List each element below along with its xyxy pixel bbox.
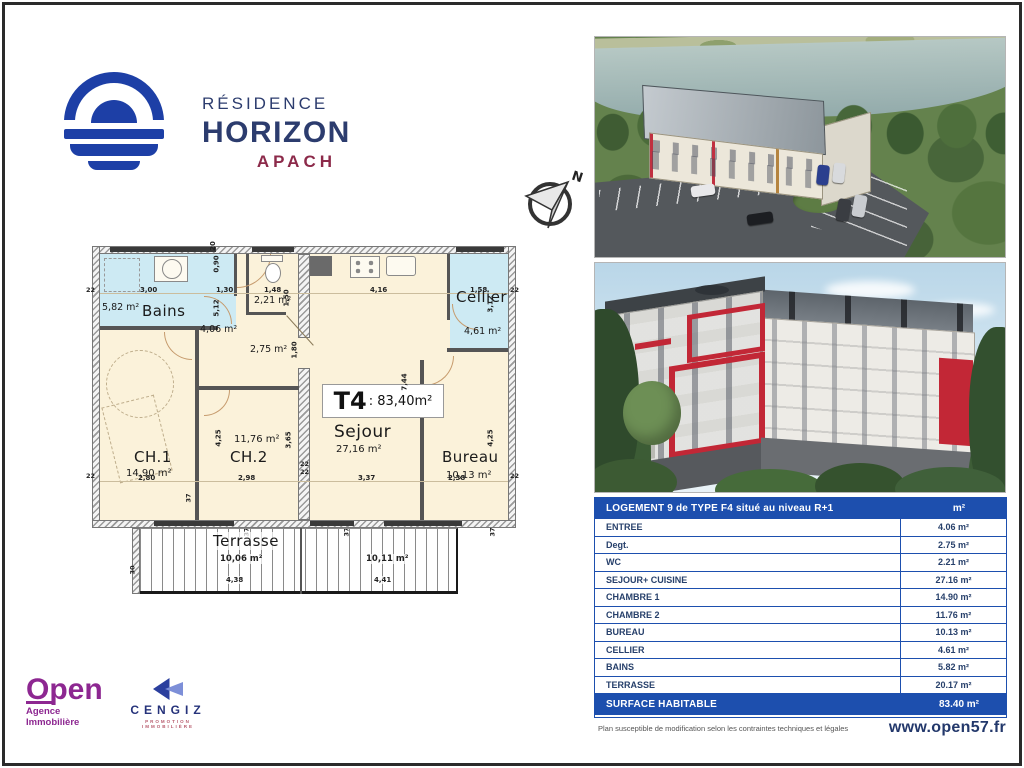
roof-parasol [695, 285, 729, 295]
dim-bottom: 2,38 [448, 474, 465, 482]
terrace-door [384, 521, 462, 526]
table-title: LOGEMENT 9 de TYPE F4 situé au niveau R+… [595, 503, 912, 514]
wall-bearing [298, 368, 310, 520]
wall-cellier-left [447, 254, 450, 320]
sink-bowl [162, 259, 182, 279]
t4-area: : 83,40m² [369, 394, 433, 409]
t4-type: T4 [334, 387, 367, 415]
red-accent-column [939, 358, 973, 446]
row-value: 2.75 m² [901, 537, 1006, 554]
shower [104, 258, 140, 292]
window [110, 247, 216, 252]
wall-wc-bottom [246, 312, 286, 315]
table-row: BUREAU10.13 m² [595, 624, 1006, 642]
sejour-area: 27,16 m² [336, 444, 382, 455]
cengiz-arrow-icon [153, 678, 183, 700]
wall-cellier-bottom [447, 348, 508, 352]
dim-line [100, 481, 508, 482]
total-value: 83.40 m² [912, 699, 1006, 710]
building-gable [821, 112, 871, 206]
dim-vertical: 4,25 [215, 429, 223, 446]
row-value: 4.06 m² [901, 519, 1006, 536]
row-value: 27.16 m² [901, 572, 1006, 589]
dim-vertical: 3,65 [285, 431, 293, 448]
open-logo-subtitle: Agence Immobilière [26, 706, 116, 728]
dim-terrasse-depth: 30 [129, 565, 137, 574]
logo-bar [70, 144, 158, 156]
wall-ch1-right [195, 330, 199, 520]
bains-area: 5,82 m² [102, 302, 139, 313]
terrace-deck [140, 528, 458, 594]
window [456, 247, 504, 252]
dim-vertical: 0,90 [213, 255, 221, 272]
wall-bearing [298, 254, 310, 338]
row-label: ENTREE [595, 519, 901, 536]
row-label: Degt. [595, 537, 901, 554]
row-label: CHAMBRE 1 [595, 589, 901, 606]
wall-mark: 22 [86, 472, 95, 480]
wall-mark: 22 [86, 286, 95, 294]
toilet-bowl [265, 263, 281, 283]
open-agency-logo: Open Agence Immobilière [26, 676, 116, 728]
wall-mark: 22 [510, 286, 519, 294]
street-building-render [594, 262, 1006, 493]
aerial-building-render [594, 36, 1006, 258]
table-row: TERRASSE20.17 m² [595, 677, 1006, 695]
dim-vertical: 1,80 [291, 341, 299, 358]
car [832, 162, 846, 183]
row-value: 14.90 m² [901, 589, 1006, 606]
table-total-row: SURFACE HABITABLE 83.40 m² [595, 694, 1006, 715]
dim-top: 3,00 [140, 286, 157, 294]
svg-text:N: N [570, 169, 585, 187]
wall-mark: 37 [185, 493, 193, 502]
dim-terrasse: 4,38 [226, 576, 243, 584]
dim-top: 4,16 [370, 286, 387, 294]
wall-mark: 22 [300, 460, 309, 468]
dim-bottom: 2,80 [138, 474, 155, 482]
dim-top: 1,58 [470, 286, 487, 294]
dim-vertical: 3,12 [487, 295, 495, 312]
row-value: 2.21 m² [901, 554, 1006, 571]
row-label: SEJOUR+ CUISINE [595, 572, 901, 589]
floor-plan: T4: 83,40m² 5,82 m² Bains 4,06 m² 2,21 m… [84, 238, 524, 618]
ch2-area: 11,76 m² [234, 434, 280, 445]
row-label: CHAMBRE 2 [595, 607, 901, 624]
cellier-area: 4,61 m² [464, 326, 501, 337]
surfaces-table: LOGEMENT 9 de TYPE F4 situé au niveau R+… [594, 497, 1007, 718]
row-label: WC [595, 554, 901, 571]
ch1-label: CH.1 [134, 448, 172, 466]
toilet-tank [261, 255, 283, 262]
terrasse-area-right: 10,11 m² [366, 554, 408, 564]
row-value: 4.61 m² [901, 642, 1006, 659]
sejour-label: Sejour [334, 422, 391, 442]
dim-vertical: 20 [209, 241, 217, 251]
dim-bottom: 2,98 [238, 474, 255, 482]
terrasse-label: Terrasse [210, 532, 282, 550]
table-row: SEJOUR+ CUISINE27.16 m² [595, 572, 1006, 590]
table-row: WC2.21 m² [595, 554, 1006, 572]
total-label: SURFACE HABITABLE [595, 699, 912, 710]
dim-vertical: 7,44 [401, 373, 409, 390]
dim-line [100, 293, 508, 294]
logo-bar [64, 129, 164, 139]
terrace-divider [300, 528, 302, 594]
horizon-word: HORIZON [202, 116, 352, 150]
entree-area: 4,06 m² [200, 324, 237, 335]
cengiz-logo-subtitle: PROMOTION IMMOBILIÈRE [118, 719, 218, 729]
terrace-side-wall [132, 528, 140, 594]
wall-mark: 37 [489, 527, 497, 536]
open-logo-word: Open [26, 676, 116, 704]
dim-top: 1,48 [264, 286, 281, 294]
bureau-label: Bureau [442, 448, 499, 466]
ch2-label: CH.2 [230, 448, 268, 466]
degt-area: 2,75 m² [250, 344, 287, 355]
row-label: TERRASSE [595, 677, 901, 694]
row-value: 10.13 m² [901, 624, 1006, 641]
table-row: BAINS5.82 m² [595, 659, 1006, 677]
table-row: ENTREE4.06 m² [595, 519, 1006, 537]
row-label: BUREAU [595, 624, 901, 641]
row-value: 5.82 m² [901, 659, 1006, 676]
residence-word: RÉSIDENCE [202, 94, 352, 114]
table-row: CHAMBRE 211.76 m² [595, 607, 1006, 625]
horizon-logo-icon [58, 72, 170, 184]
t4-label-box: T4: 83,40m² [322, 384, 444, 418]
terrace-door [310, 521, 354, 526]
cengiz-logo: CENGIZ PROMOTION IMMOBILIÈRE [118, 678, 218, 729]
flowering-tree [623, 381, 681, 445]
red-balcony-frame [669, 351, 765, 458]
residence-title: RÉSIDENCE HORIZON APACH [202, 94, 352, 172]
dim-vertical: 5,12 [213, 299, 221, 316]
wall-mark: 22 [300, 468, 309, 476]
row-value: 11.76 m² [901, 607, 1006, 624]
row-value: 20.17 m² [901, 677, 1006, 694]
north-compass-icon: N [518, 166, 590, 234]
terrace-door [154, 521, 234, 526]
row-label: BAINS [595, 659, 901, 676]
table-row: Degt.2.75 m² [595, 537, 1006, 555]
kitchen-fridge [310, 256, 332, 276]
dim-terrasse: 4,41 [374, 576, 391, 584]
logo-bar [88, 161, 140, 170]
apach-word: APACH [202, 152, 336, 172]
dim-vertical: 1,50 [283, 289, 291, 306]
kitchen-sink [386, 256, 416, 276]
table-header-row: LOGEMENT 9 de TYPE F4 situé au niveau R+… [595, 498, 1006, 519]
cengiz-logo-word: CENGIZ [118, 703, 218, 717]
car [816, 164, 830, 185]
dim-top: 1,30 [216, 286, 233, 294]
wall-mark: 22 [510, 472, 519, 480]
terrasse-area-left: 10,06 m² [220, 554, 262, 564]
table-unit: m² [912, 503, 1006, 514]
row-label: CELLIER [595, 642, 901, 659]
stove-burners [352, 258, 378, 276]
table-row: CELLIER4.61 m² [595, 642, 1006, 660]
website-link[interactable]: www.open57.fr [830, 719, 1006, 737]
dim-bottom: 3,37 [358, 474, 375, 482]
table-row: CHAMBRE 114.90 m² [595, 589, 1006, 607]
window [252, 247, 294, 252]
bains-label: Bains [142, 302, 185, 320]
dim-vertical: 4,25 [487, 429, 495, 446]
